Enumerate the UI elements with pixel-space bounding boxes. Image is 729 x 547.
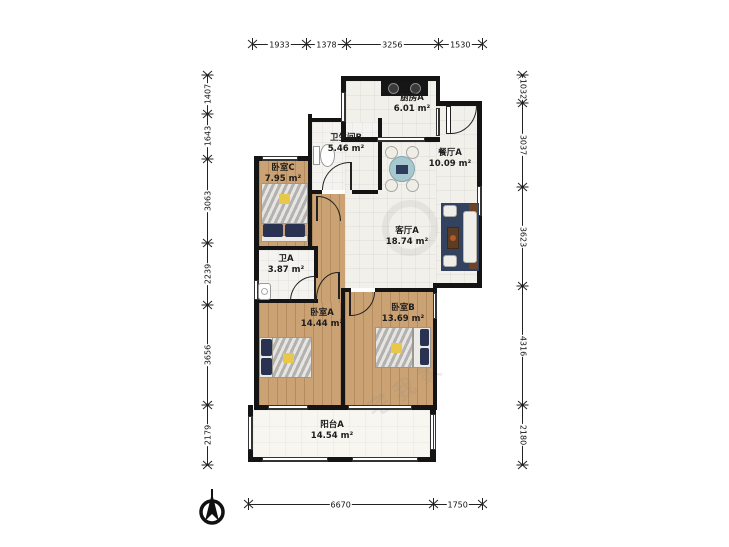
- room-label-bed-a: 卧室A14.44 m²: [301, 308, 343, 331]
- bed-icon-bed-a: [259, 337, 312, 378]
- dimension-value: 3656: [203, 344, 212, 366]
- wall: [375, 288, 433, 292]
- room-area: 6.01 m²: [394, 104, 431, 115]
- room-label-bed-c: 卧室C7.95 m²: [265, 163, 302, 186]
- room-name: 卧室B: [382, 303, 424, 314]
- dimension-tick: [433, 38, 445, 50]
- window: [248, 416, 253, 450]
- room-label-bath-b: 卫生间B5.46 m²: [328, 133, 365, 156]
- dimension-value: 2239: [203, 263, 212, 285]
- dimension-tick: [246, 38, 258, 50]
- dimension-value: 2180: [518, 424, 527, 446]
- dimension-value: 3063: [203, 190, 212, 212]
- room-area: 14.44 m²: [301, 319, 343, 330]
- kitchen-side-opening: [436, 108, 440, 136]
- dimension-value: 3623: [518, 225, 527, 247]
- room-name: 厨房A: [394, 93, 431, 104]
- dimension-tick: [476, 38, 488, 50]
- wall: [308, 118, 345, 122]
- room-name: 阳台A: [311, 420, 353, 431]
- room-area: 5.46 m²: [328, 144, 365, 155]
- window: [341, 92, 346, 122]
- armchair-icon: [443, 205, 457, 217]
- bed-a-door-leaf: [338, 272, 340, 299]
- compass-icon: [192, 486, 232, 534]
- dimension-tick: [516, 399, 528, 411]
- room-area: 13.69 m²: [382, 314, 424, 325]
- bed-icon-bed-c: [261, 183, 308, 242]
- room-label-kitchen: 厨房A6.01 m²: [394, 93, 431, 116]
- dimension-value: 1933: [268, 40, 290, 49]
- dimension-tick: [516, 181, 528, 193]
- sliding-door: [268, 405, 308, 410]
- dimension-tick: [301, 38, 313, 50]
- wall: [412, 405, 433, 410]
- wall: [254, 405, 268, 410]
- window: [262, 457, 328, 462]
- dimension-value: 1750: [446, 500, 468, 509]
- sliding-door: [348, 405, 412, 410]
- dimension-tick: [201, 459, 213, 471]
- sink-icon: [258, 283, 271, 300]
- wall: [433, 283, 482, 288]
- kitchen-pass-opening: [377, 137, 425, 142]
- dimension-value: 1407: [203, 83, 212, 105]
- wall: [425, 137, 440, 142]
- dimension-tick: [201, 153, 213, 165]
- wall: [341, 288, 345, 405]
- window: [262, 156, 298, 161]
- wall: [308, 405, 348, 410]
- dimension-tick: [516, 459, 528, 471]
- room-label-bath-a: 卫A3.87 m²: [268, 254, 305, 277]
- window: [430, 414, 436, 450]
- bed-icon-bed-b: [375, 327, 431, 368]
- dimension-tick: [242, 498, 254, 510]
- wall: [308, 190, 322, 194]
- room-name: 客厅A: [386, 226, 428, 237]
- room-name: 卫生间B: [328, 133, 365, 144]
- room-area: 14.54 m²: [311, 431, 353, 442]
- dimension-value: 3256: [381, 40, 403, 49]
- sofa-set-icon: [441, 203, 479, 271]
- wall: [352, 190, 378, 194]
- sofa-icon: [463, 211, 477, 263]
- dimension-value: 3037: [518, 134, 527, 156]
- dimension-value: 1378: [315, 40, 337, 49]
- dimension-value: 4316: [518, 335, 527, 357]
- dimension-value: 2179: [203, 424, 212, 446]
- room-name: 餐厅A: [429, 148, 471, 159]
- dimension-tick: [427, 498, 439, 510]
- room-name: 卧室A: [301, 308, 343, 319]
- room-name: 卫A: [268, 254, 305, 265]
- dimension-tick: [340, 38, 352, 50]
- dining-table-icon: [382, 146, 422, 194]
- window: [433, 293, 437, 319]
- room-area: 7.95 m²: [265, 174, 302, 185]
- floor-plan-page: 宅我家: [0, 0, 729, 547]
- room-label-balcony: 阳台A14.54 m²: [311, 420, 353, 443]
- dimension-tick: [201, 399, 213, 411]
- room-label-dining: 餐厅A10.09 m²: [429, 148, 471, 171]
- wall: [314, 246, 318, 278]
- dimension-value: 1530: [449, 40, 471, 49]
- room-area: 10.09 m²: [429, 159, 471, 170]
- room-area: 3.87 m²: [268, 265, 305, 276]
- dimension-tick: [201, 108, 213, 120]
- wall: [308, 114, 312, 250]
- armchair-icon: [443, 255, 457, 267]
- dimension-tick: [476, 498, 488, 510]
- dimension-tick: [201, 69, 213, 81]
- dimension-tick: [201, 299, 213, 311]
- dimension-tick: [516, 280, 528, 292]
- wall: [254, 246, 318, 250]
- dimension-value: 6670: [329, 500, 351, 509]
- room-label-bed-b: 卧室B13.69 m²: [382, 303, 424, 326]
- dimension-tick: [516, 97, 528, 109]
- dimension-tick: [201, 237, 213, 249]
- bath-b-door-leaf: [350, 162, 352, 190]
- window: [352, 457, 418, 462]
- room-label-living: 客厅A18.74 m²: [386, 226, 428, 249]
- room-name: 卧室C: [265, 163, 302, 174]
- room-area: 18.74 m²: [386, 237, 428, 248]
- dimension-value: 1643: [203, 125, 212, 147]
